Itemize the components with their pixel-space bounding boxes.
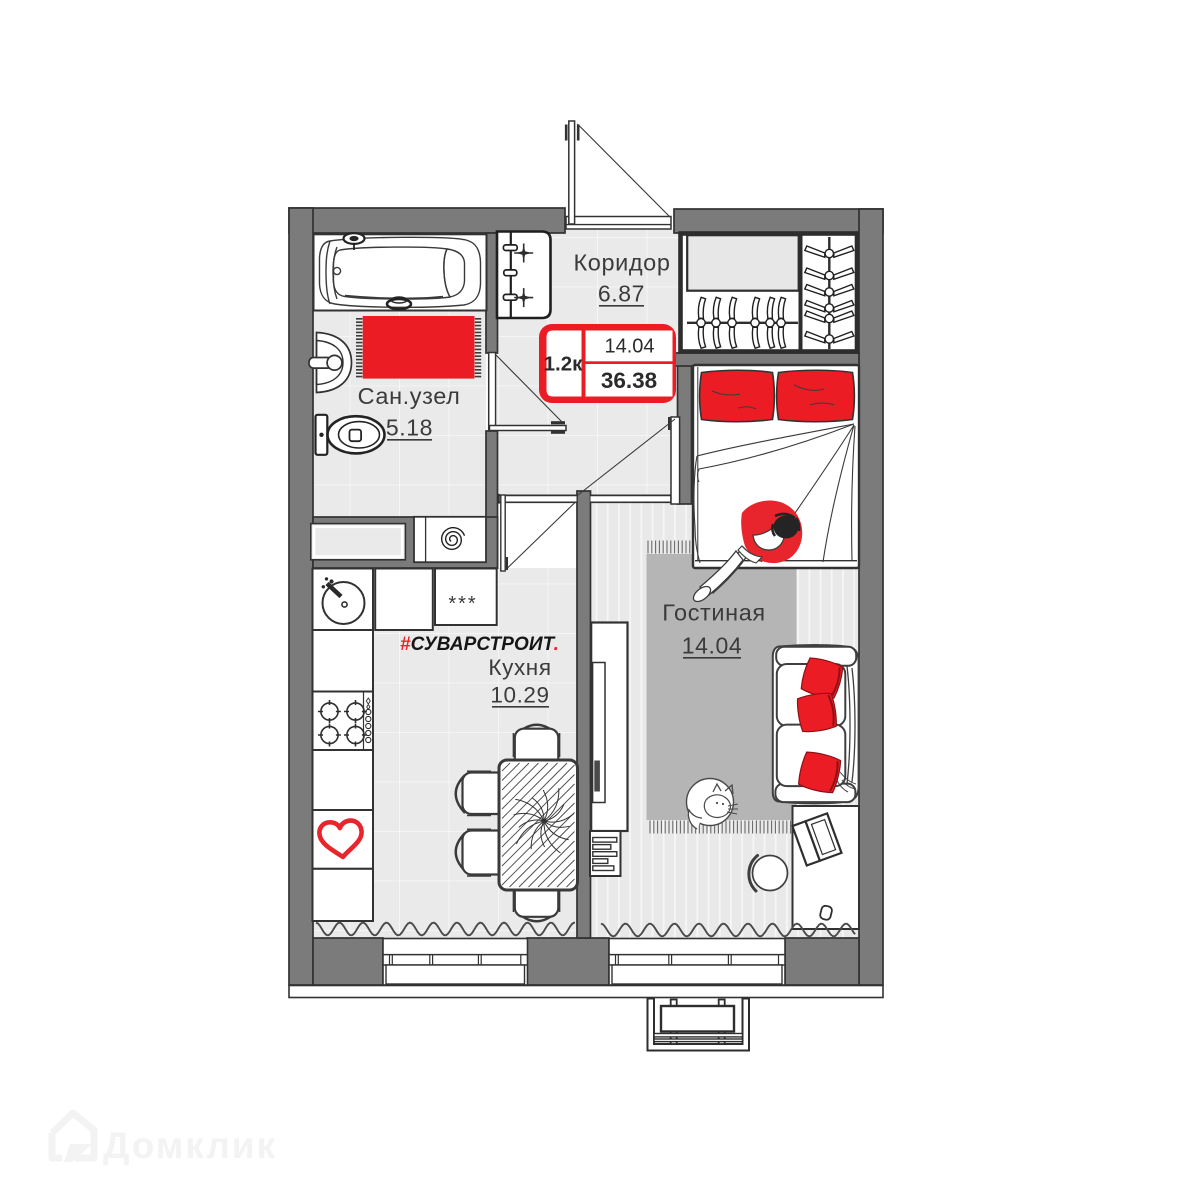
svg-text:Кухня: Кухня — [488, 655, 551, 680]
svg-text:14.04: 14.04 — [682, 633, 743, 659]
svg-text:Домклик: Домклик — [103, 1125, 277, 1166]
svg-text:1.2к: 1.2к — [544, 353, 583, 376]
svg-text:Коридор: Коридор — [573, 250, 670, 276]
svg-text:Гостиная: Гостиная — [662, 600, 765, 626]
svg-text:Сан.узел: Сан.узел — [358, 383, 461, 409]
svg-text:36.38: 36.38 — [601, 368, 657, 393]
svg-text:6.87: 6.87 — [598, 281, 645, 307]
svg-text:14.04: 14.04 — [604, 336, 654, 358]
svg-text:***: *** — [448, 593, 477, 615]
svg-text:#СУВАРСТРОИТ.: #СУВАРСТРОИТ. — [400, 634, 559, 655]
svg-text:5.18: 5.18 — [386, 415, 433, 441]
svg-text:10.29: 10.29 — [490, 683, 549, 708]
